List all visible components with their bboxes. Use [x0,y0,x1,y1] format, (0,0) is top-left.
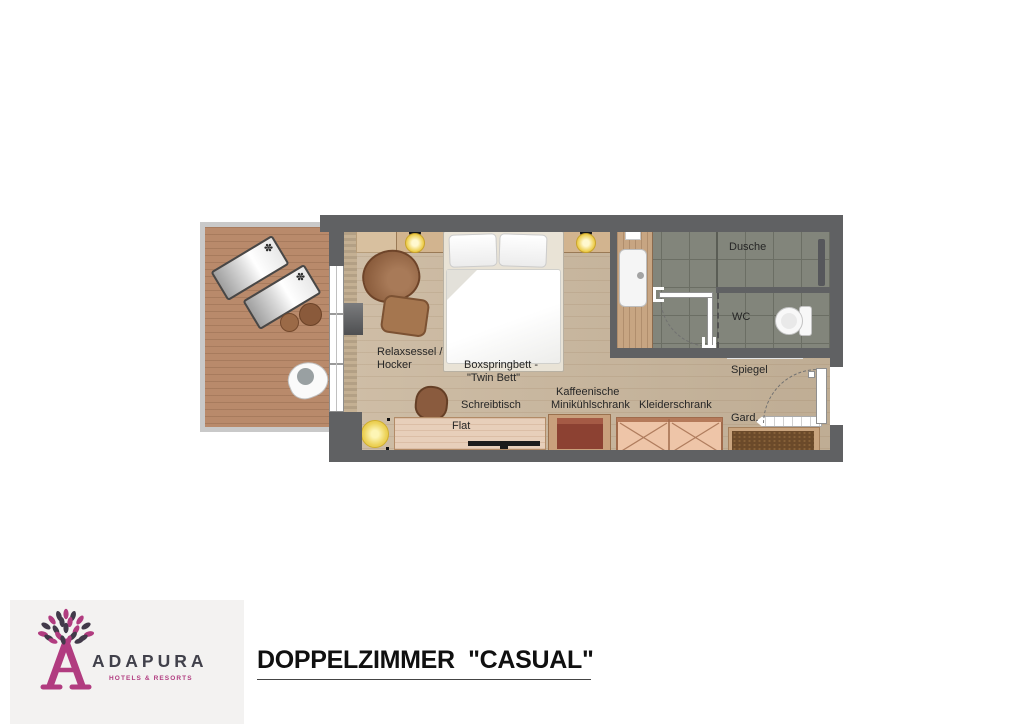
label-flat-tv: Flat [452,420,470,432]
bedside-lamp-right [576,233,596,253]
wall-top [320,215,843,232]
tv-stand [500,446,508,449]
entrance-door-handle [808,371,815,378]
brand-tagline: HOTELS & RESORTS [109,675,193,682]
entrance-door-leaf [816,368,827,424]
label-kaffeenische: Kaffeenische [556,386,619,398]
wall-bathroom-left [610,232,617,358]
label-hocker: Hocker [377,359,412,371]
terrace-wall-bottom [200,427,332,432]
brand-name: ADAPURA [92,651,208,672]
bathroom-door-leaf [659,292,713,298]
duvet-fold [447,270,477,300]
label-twin-bett: "Twin Bett" [467,372,520,384]
wall-window-top [329,215,344,266]
toilet-bowl-inner [781,313,797,329]
duvet [446,269,561,364]
page-title: DOPPELZIMMER "CASUAL" [257,646,594,675]
flower-icon: ✽ [293,269,308,285]
wall-corner-block [329,412,362,462]
label-wc: WC [732,311,750,323]
label-garderobe: Gard. [731,412,759,424]
label-relaxsessel: Relaxsessel / [377,346,442,358]
label-dusche: Dusche [729,241,766,253]
terrace-side-table [280,313,299,332]
pillow [498,233,547,268]
bedside-lamp-left [405,233,425,253]
wall-bathroom-bottom [610,348,830,358]
title-underline [257,679,591,680]
faucet [637,272,644,279]
terrace-chair-seat [297,368,314,385]
door-hinge-mark [653,287,664,302]
door-stop-mark [702,337,716,348]
label-minikuehlschrank: Minikühlschrank [551,399,630,411]
side-table-dark [343,303,363,335]
garderobe-bench [732,431,814,451]
floor-lamp [361,420,389,448]
minibar [557,418,603,449]
terrace-window [329,264,344,412]
soap-dish [625,231,641,240]
shower-head [818,239,825,286]
wc-door-opening [717,293,719,348]
wall-shower-wc-divider [716,287,830,293]
floor-lamp-foot [387,418,390,421]
label-spiegel: Spiegel [731,364,768,376]
ottoman [380,294,431,338]
terrace-side-table [299,303,322,326]
window-center-line [336,265,337,411]
flower-icon: ✽ [261,240,276,256]
label-schreibtisch: Schreibtisch [461,399,521,411]
adapura-tree-logo-icon [38,608,94,692]
wall-right-upper [830,215,843,367]
label-kleiderschrank: Kleiderschrank [639,399,712,411]
label-boxspringbett: Boxspringbett - [464,359,538,371]
shower-glass-partition [716,232,718,288]
wall-bottom [329,450,843,462]
toilet-bowl [775,307,803,335]
pillow [448,233,497,268]
